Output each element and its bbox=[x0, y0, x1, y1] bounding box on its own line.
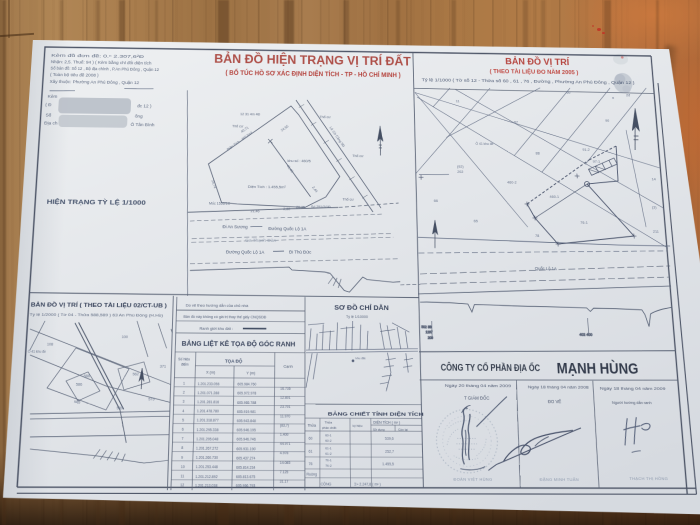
svg-text:402 400: 402 400 bbox=[579, 333, 592, 337]
svg-text:585: 585 bbox=[74, 400, 81, 405]
svg-text:khu đất: khu đất bbox=[356, 356, 366, 361]
svg-text:Số hiệu: Số hiệu bbox=[178, 357, 190, 362]
svg-text:60-1: 60-1 bbox=[325, 433, 332, 438]
svg-text:Σ≈ 2.247,8 ( m² ): Σ≈ 2.247,8 ( m² ) bbox=[354, 482, 381, 487]
svg-text:605.919.981: 605.919.981 bbox=[237, 409, 256, 414]
svg-text:202: 202 bbox=[457, 170, 463, 174]
svg-text:Thổ cư: Thổ cư bbox=[342, 197, 354, 201]
svg-text:Y (m): Y (m) bbox=[246, 371, 255, 376]
svg-text:X (m): X (m) bbox=[206, 370, 215, 375]
svg-text:2đ: 2đ bbox=[626, 93, 630, 97]
svg-text:Địa ch: Địa ch bbox=[44, 120, 58, 125]
svg-text:Người hướng dẫn ranh: Người hướng dẫn ranh bbox=[612, 399, 652, 405]
svg-text:Mốc 1556/1C: Mốc 1556/1C bbox=[209, 201, 231, 205]
svg-text:76-1: 76-1 bbox=[580, 221, 588, 225]
svg-text:Ô 41 khu đề: Ô 41 khu đề bbox=[475, 141, 493, 146]
svg-text:THẠCH THỊ HỒNG: THẠCH THỊ HỒNG bbox=[629, 475, 668, 481]
svg-text:1.201.213.038: 1.201.213.038 bbox=[195, 483, 218, 488]
svg-text:12 31 4m 4Đ: 12 31 4m 4Đ bbox=[240, 112, 261, 116]
svg-text:Ranh giới khu đất :: Ranh giới khu đất : bbox=[199, 326, 233, 331]
svg-text:78: 78 bbox=[535, 234, 539, 238]
svg-text:108: 108 bbox=[47, 342, 54, 346]
svg-text:65: 65 bbox=[474, 219, 478, 223]
svg-text:1.201.212.892: 1.201.212.892 bbox=[195, 474, 218, 479]
svg-text:Thửa: Thửa bbox=[308, 423, 317, 428]
svg-text:Quốc Lộ 1A: Quốc Lộ 1A bbox=[535, 266, 558, 271]
svg-text:ống: ống bbox=[135, 114, 144, 119]
svg-text:605.813.675: 605.813.675 bbox=[236, 475, 256, 480]
svg-text:CÔNG TY CỔ PHẦN ĐỊA ỐC: CÔNG TY CỔ PHẦN ĐỊA ỐC bbox=[441, 361, 541, 374]
svg-text:23.701: 23.701 bbox=[280, 405, 291, 410]
svg-text:DIỆN TÍCH ( m² ): DIỆN TÍCH ( m² ) bbox=[373, 419, 400, 425]
svg-text:460-2: 460-2 bbox=[507, 180, 517, 184]
svg-text:Đường Quốc Lộ 1A: Đường Quốc Lộ 1A bbox=[268, 226, 306, 232]
svg-text:ĐẶNG MINH TUẤN: ĐẶNG MINH TUẤN bbox=[539, 476, 579, 482]
svg-text:1.201.318.877: 1.201.318.877 bbox=[197, 418, 219, 423]
svg-text:539,6: 539,6 bbox=[385, 436, 394, 441]
svg-text:Tỷ lệ 1/2000 ( Tờ 04 - Thử: Tỷ lệ 1/2000 ( Tờ 04 - Thửa 588,589 ) 63… bbox=[29, 312, 164, 317]
svg-text:97-1: 97-1 bbox=[593, 160, 601, 164]
svg-text:61-2: 61-2 bbox=[325, 451, 332, 456]
svg-text:TỌA ĐỘ: TỌA ĐỘ bbox=[225, 358, 243, 364]
svg-text:1297: 1297 bbox=[425, 330, 433, 334]
svg-text:60: 60 bbox=[566, 91, 570, 95]
svg-text:575: 575 bbox=[148, 397, 155, 402]
svg-text:Ga Thạch Đàn: Ga Thạch Đàn bbox=[245, 237, 277, 243]
svg-text:BẢN ĐỒ HIỆN TRẠNG VỊ TRÍ ĐẤT: BẢN ĐỒ HIỆN TRẠNG VỊ TRÍ ĐẤT bbox=[214, 51, 411, 68]
svg-text:16.736: 16.736 bbox=[280, 386, 291, 391]
svg-text:11.970: 11.970 bbox=[280, 414, 291, 419]
svg-text:90: 90 bbox=[605, 119, 609, 123]
svg-text:Thửa: Thửa bbox=[325, 420, 333, 425]
svg-text:14: 14 bbox=[651, 177, 655, 181]
svg-text:1.201.281.816: 1.201.281.816 bbox=[197, 400, 219, 405]
svg-text:Thổ cư: Thổ cư bbox=[320, 115, 332, 119]
svg-text:Ngày 20 tháng 04 năm 2009: Ngày 20 tháng 04 năm 2009 bbox=[445, 383, 511, 388]
svg-text:Số: Số bbox=[45, 112, 52, 117]
svg-text:phân chiết: phân chiết bbox=[322, 425, 337, 430]
svg-text:1.201.233.056: 1.201.233.056 bbox=[198, 382, 220, 387]
svg-text:7.125: 7.125 bbox=[280, 470, 289, 475]
svg-text:Cạnh: Cạnh bbox=[283, 364, 292, 369]
svg-text:Ô 41 khu đề: Ô 41 khu đề bbox=[28, 348, 47, 354]
svg-text:252,7: 252,7 bbox=[385, 449, 394, 454]
svg-text:Do vẽ theo hướng dẫn của chủ n: Do vẽ theo hướng dẫn của chủ nhà bbox=[186, 302, 250, 308]
svg-text:1.201.253.448: 1.201.253.448 bbox=[196, 465, 219, 470]
svg-text:Sử dụng: Sử dụng bbox=[373, 427, 385, 432]
svg-text:Diện Tích : 1.455,5m²: Diện Tích : 1.455,5m² bbox=[248, 185, 287, 190]
svg-text:Đường Quốc Lộ 1A: Đường Quốc Lộ 1A bbox=[226, 249, 265, 255]
svg-text:12: 12 bbox=[180, 483, 184, 488]
svg-text:605.965.788: 605.965.788 bbox=[237, 400, 256, 405]
svg-text:10: 10 bbox=[181, 464, 185, 469]
svg-text:1.201.478.780: 1.201.478.780 bbox=[197, 409, 219, 414]
svg-text:200: 200 bbox=[428, 336, 434, 340]
svg-text:76-2: 76-2 bbox=[325, 463, 332, 468]
svg-text:( Đ: ( Đ bbox=[45, 102, 52, 107]
svg-text:Đi An Sương: Đi An Sương bbox=[222, 224, 248, 230]
svg-text:605.946.195: 605.946.195 bbox=[237, 428, 256, 433]
svg-text:12.801: 12.801 bbox=[280, 395, 291, 400]
svg-text:điểm: điểm bbox=[181, 362, 189, 367]
svg-text:SƠ ĐỒ CHỈ DẪN: SƠ ĐỒ CHỈ DẪN bbox=[334, 304, 389, 312]
svg-text:( Toàn bộ tiêu đề 2008 ): ( Toàn bộ tiêu đề 2008 ) bbox=[50, 72, 100, 78]
svg-text:Ngày 18 tháng 04 năm 2008: Ngày 18 tháng 04 năm 2008 bbox=[528, 385, 589, 390]
svg-text:(83,7): (83,7) bbox=[280, 423, 289, 428]
svg-text:Ngày 18 tháng 04 năm 2009: Ngày 18 tháng 04 năm 2009 bbox=[600, 386, 666, 391]
svg-text:562: 562 bbox=[133, 372, 140, 377]
svg-text:371: 371 bbox=[160, 364, 166, 369]
svg-text:Tỷ lệ 1/10000: Tỷ lệ 1/10000 bbox=[346, 315, 368, 320]
svg-text:60-2: 60-2 bbox=[325, 438, 332, 443]
svg-text:Ruộng: Ruộng bbox=[306, 472, 317, 477]
svg-text:31.17: 31.17 bbox=[280, 479, 289, 484]
svg-text:586: 586 bbox=[76, 382, 83, 387]
svg-text:(3): (3) bbox=[652, 205, 657, 209]
svg-text:1.400: 1.400 bbox=[280, 432, 289, 437]
svg-text:100: 100 bbox=[122, 335, 128, 339]
svg-text:ĐO VẾ: ĐO VẾ bbox=[548, 399, 562, 405]
svg-text:1.201.267.272: 1.201.267.272 bbox=[196, 446, 219, 451]
svg-text:589: 589 bbox=[117, 406, 124, 411]
svg-text:Đi Thủ Đức: Đi Thủ Đức bbox=[289, 249, 311, 255]
svg-text:ký hiệu: ký hiệu bbox=[353, 423, 363, 428]
svg-text:Thổ cư: Thổ cư bbox=[352, 154, 364, 158]
svg-text:76: 76 bbox=[309, 462, 313, 467]
svg-text:BẢNG CHIẾT TÍNH DIỆN TÍCH: BẢNG CHIẾT TÍNH DIỆN TÍCH bbox=[328, 411, 424, 417]
svg-text:CỘNG: CỘNG bbox=[321, 481, 332, 487]
svg-text:Thổ cư: Thổ cư bbox=[232, 124, 244, 128]
svg-text:605.437.274: 605.437.274 bbox=[236, 456, 256, 461]
svg-text:502 3Đ: 502 3Đ bbox=[421, 325, 432, 329]
svg-text:BẢN ĐỒ VỊ TRÍ: BẢN ĐỒ VỊ TRÍ bbox=[505, 56, 570, 68]
svg-text:605.814.234: 605.814.234 bbox=[236, 465, 256, 470]
svg-text:460-1: 460-1 bbox=[549, 195, 559, 199]
svg-text:Bản đồ này không có giá trị th: Bản đồ này không có giá trị thay thế giấ… bbox=[183, 315, 267, 320]
svg-text:605.966.793: 605.966.793 bbox=[236, 484, 256, 489]
svg-text:14.085: 14.085 bbox=[280, 460, 291, 465]
svg-text:1.455,5: 1.455,5 bbox=[382, 462, 394, 467]
svg-text:61: 61 bbox=[309, 449, 313, 454]
svg-text:Kèm: Kèm bbox=[48, 94, 58, 99]
svg-text:76-1: 76-1 bbox=[325, 458, 332, 463]
svg-text:605.972.978: 605.972.978 bbox=[237, 391, 256, 396]
svg-text:66: 66 bbox=[434, 199, 438, 203]
svg-text:605.943.848: 605.943.848 bbox=[237, 419, 256, 424]
svg-text:44.971: 44.971 bbox=[280, 442, 291, 447]
svg-text:đc 12 ): đc 12 ) bbox=[137, 103, 152, 108]
svg-text:1.201.071.288: 1.201.071.288 bbox=[197, 391, 219, 396]
svg-text:588: 588 bbox=[84, 374, 91, 379]
svg-text:ĐOÀN VIỆT HÙNG: ĐOÀN VIỆT HÙNG bbox=[453, 476, 492, 482]
svg-text:T GIÁM ĐỐC: T GIÁM ĐỐC bbox=[464, 395, 490, 401]
svg-text:87: 87 bbox=[514, 120, 518, 124]
svg-text:211: 211 bbox=[653, 230, 659, 234]
svg-text:91-2: 91-2 bbox=[582, 148, 590, 152]
svg-text:11: 11 bbox=[456, 99, 460, 103]
svg-text:MẠNH HÙNG: MẠNH HÙNG bbox=[556, 360, 639, 377]
svg-text:88: 88 bbox=[536, 151, 540, 155]
svg-text:1.201.295.338: 1.201.295.338 bbox=[196, 427, 218, 432]
svg-text:(92): (92) bbox=[457, 165, 464, 169]
svg-text:60: 60 bbox=[309, 436, 313, 441]
svg-text:Ô Tân Bình: Ô Tân Bình bbox=[130, 121, 155, 127]
svg-text:1.201.295.048: 1.201.295.048 bbox=[196, 437, 218, 442]
svg-text:4.976: 4.976 bbox=[280, 451, 289, 456]
svg-text:khu số : 460/5: khu số : 460/5 bbox=[287, 159, 310, 163]
svg-text:605.931.190: 605.931.190 bbox=[236, 447, 256, 452]
svg-text:61-1: 61-1 bbox=[325, 446, 332, 451]
svg-text:605.984.760: 605.984.760 bbox=[237, 382, 256, 387]
svg-text:605.946.746: 605.946.746 bbox=[237, 437, 257, 442]
svg-text:Còn lại: Còn lại bbox=[398, 427, 408, 432]
svg-text:1.201.260.730: 1.201.260.730 bbox=[196, 455, 219, 460]
svg-text:11: 11 bbox=[180, 474, 184, 479]
